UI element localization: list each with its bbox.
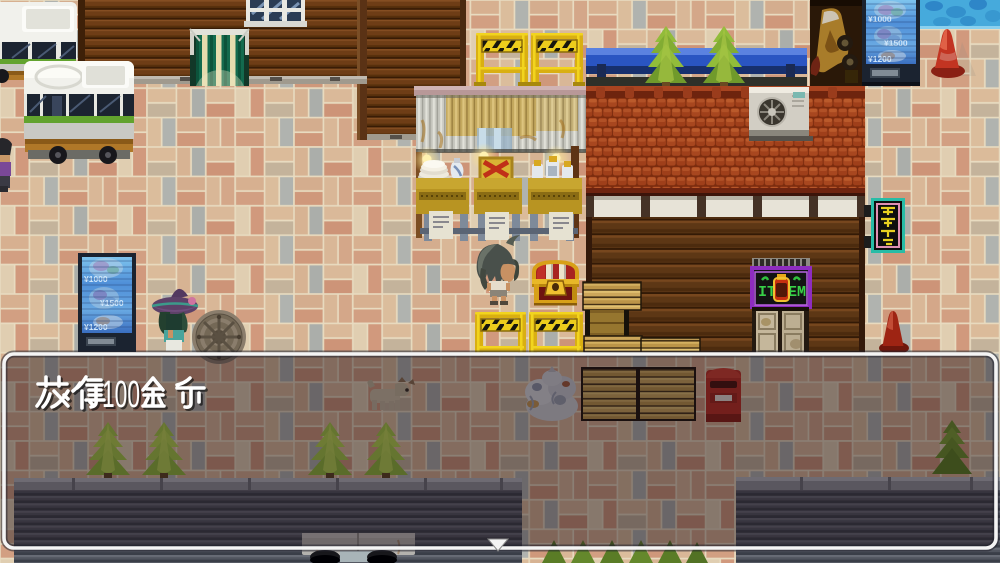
svg-text:EM: EM: [788, 284, 806, 301]
svg-text:100: 100: [102, 373, 140, 415]
svg-text:¥1200: ¥1200: [868, 54, 892, 64]
